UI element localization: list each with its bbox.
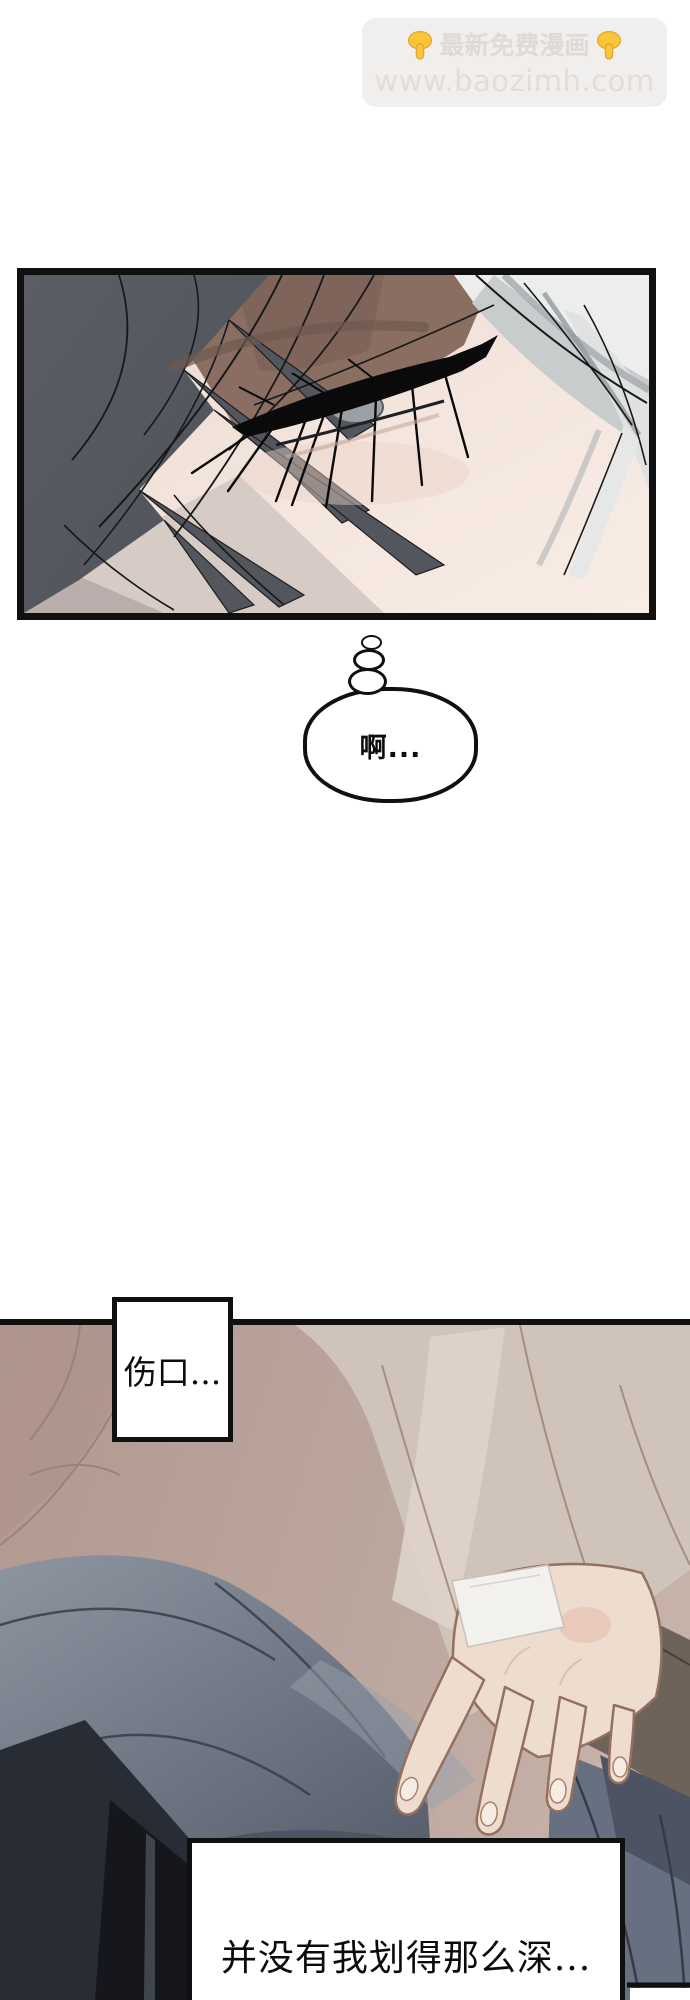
thought-trail-dot xyxy=(361,635,382,650)
thought-trail-dot xyxy=(348,668,387,695)
caption-box-wound: 伤口... xyxy=(112,1297,233,1442)
panel-face-closeup xyxy=(17,268,656,620)
watermark: 最新免费漫画 www.baozimh.com xyxy=(362,18,667,107)
point-down-icon xyxy=(593,29,625,61)
caption-box-not-deep: 并没有我划得那么深... xyxy=(187,1838,625,2000)
bottom-right-box-corner xyxy=(627,1985,690,2000)
thought-bubble: 啊... xyxy=(303,687,478,803)
watermark-url: www.baozimh.com xyxy=(374,67,654,96)
caption-text: 并没有我划得那么深... xyxy=(221,1938,591,1979)
comic-page: 最新免费漫画 www.baozimh.com xyxy=(0,0,690,2000)
caption-text: 伤口... xyxy=(124,1346,221,1394)
thought-bubble-text: 啊... xyxy=(360,726,422,765)
point-down-icon xyxy=(404,29,436,61)
watermark-title-row: 最新免费漫画 xyxy=(404,29,624,61)
panel-face-artwork xyxy=(24,275,649,613)
watermark-title: 最新免费漫画 xyxy=(439,33,589,58)
